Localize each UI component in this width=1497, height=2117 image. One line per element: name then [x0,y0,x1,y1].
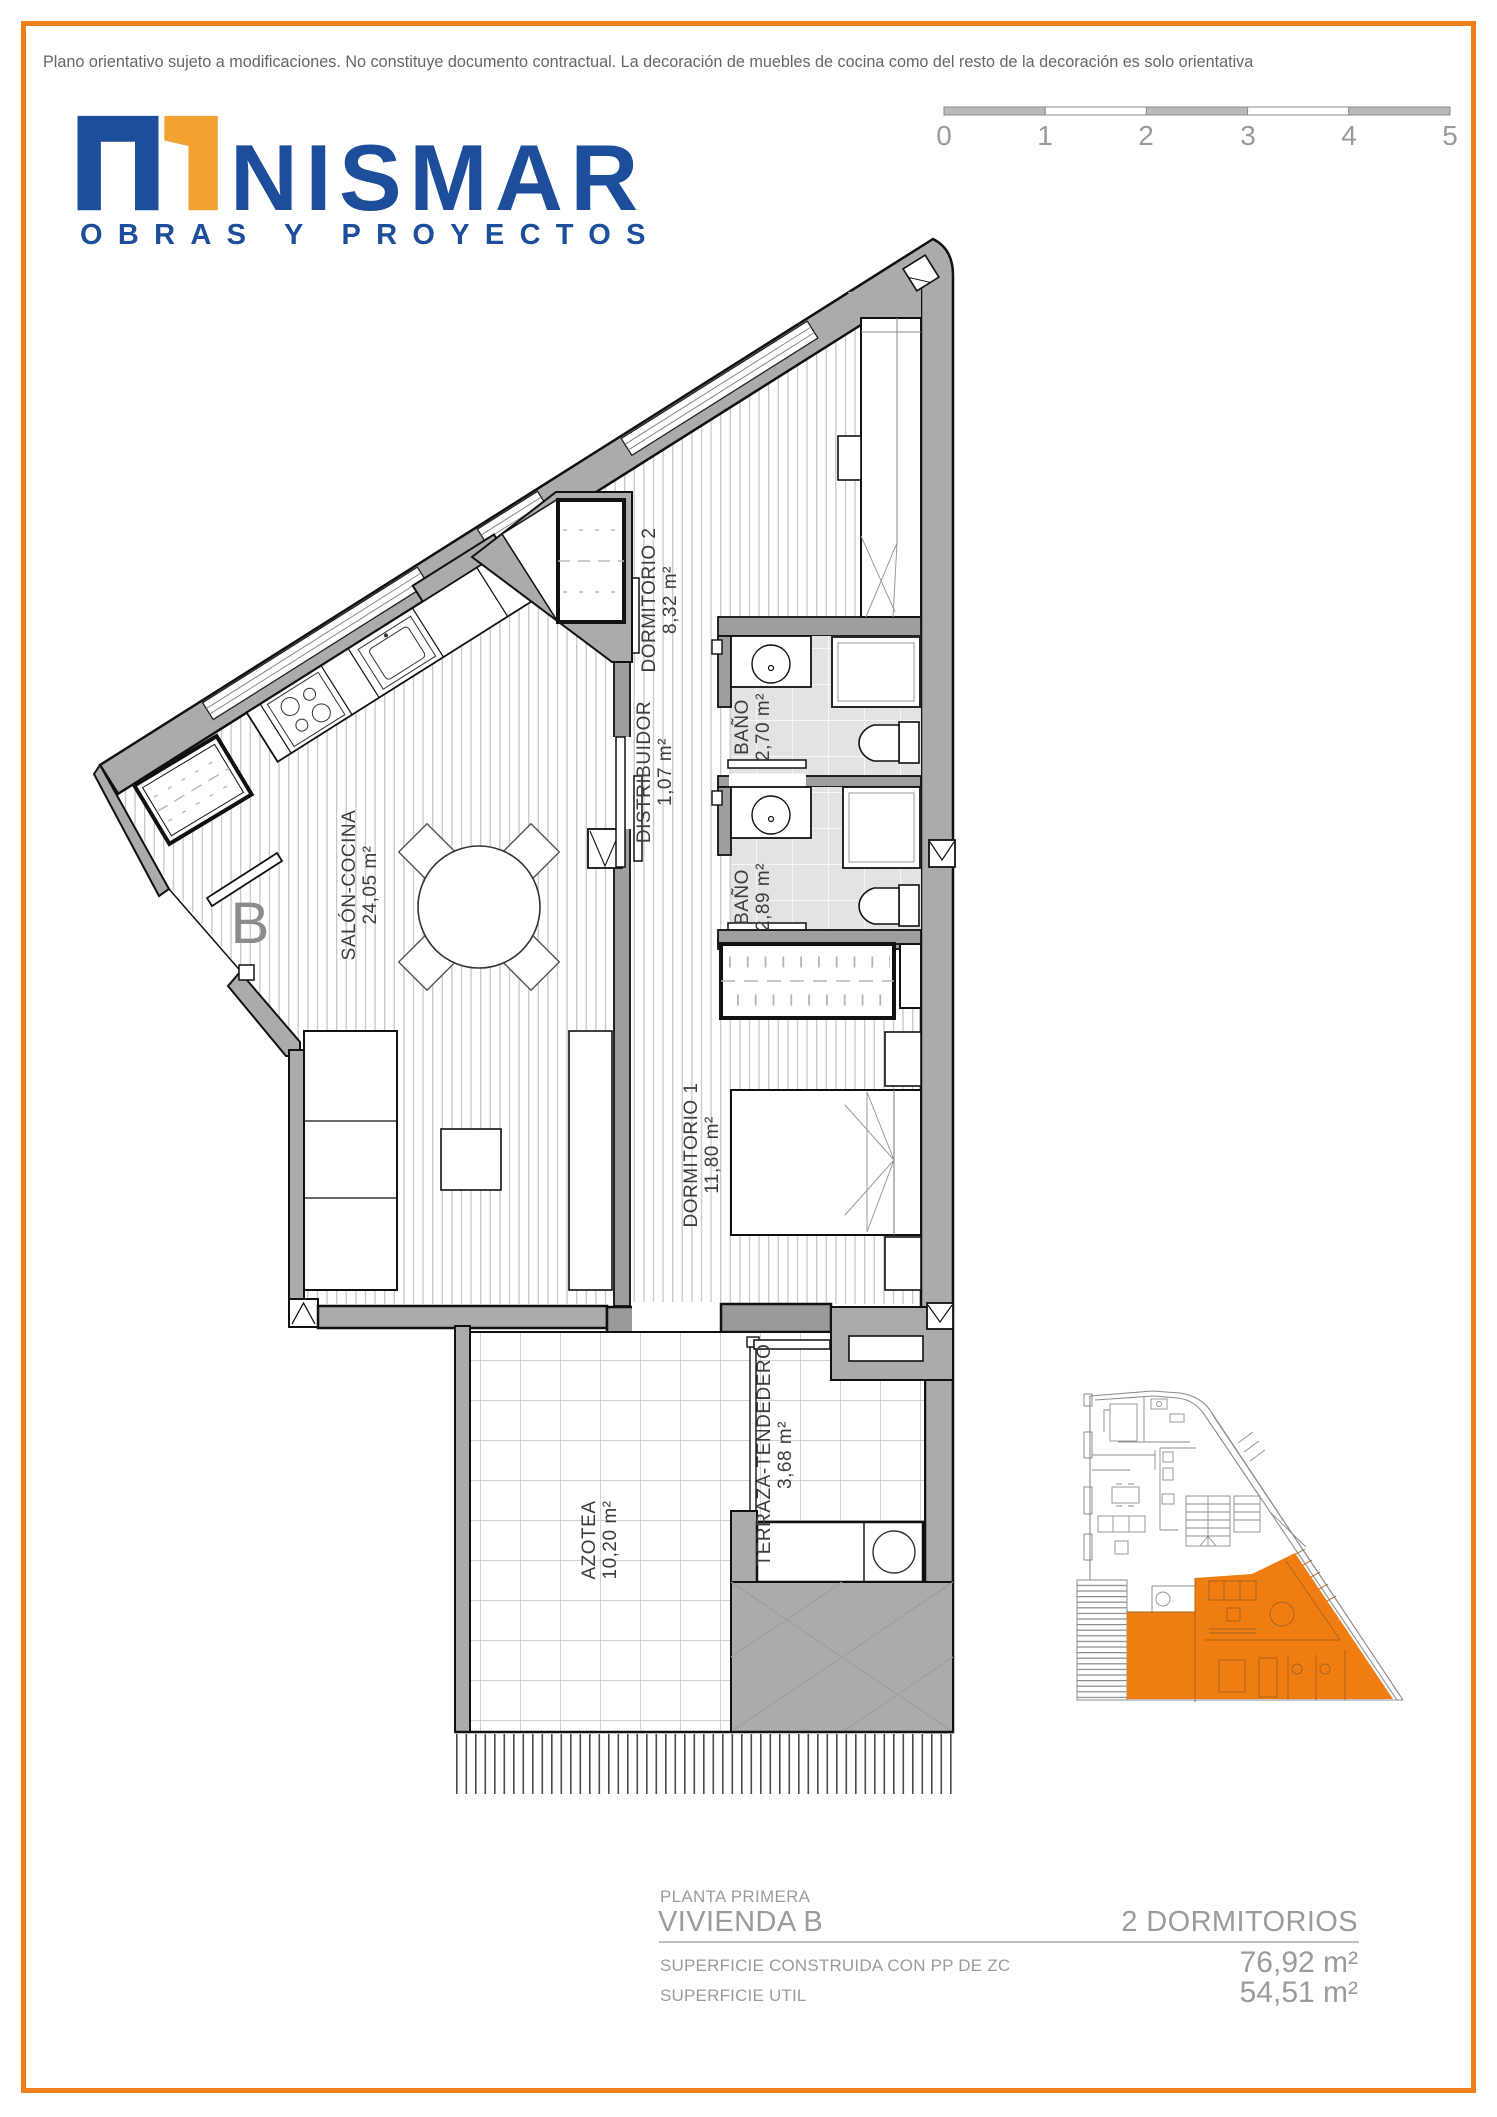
svg-text:BAÑO2,89 m²: BAÑO2,89 m² [731,863,774,931]
svg-text:B: B [231,891,270,956]
svg-text:2: 2 [1138,120,1154,151]
svg-text:NISMAR: NISMAR [230,125,646,230]
svg-text:SUPERFICIE UTIL: SUPERFICIE UTIL [660,1986,807,2005]
svg-text:1: 1 [1037,120,1053,151]
svg-text:Plano orientativo sujeto a mod: Plano orientativo sujeto a modificacione… [43,53,1253,71]
svg-text:4: 4 [1341,120,1357,151]
svg-text:5: 5 [1442,120,1458,151]
svg-text:AZOTEA10,20 m²: AZOTEA10,20 m² [579,1500,621,1579]
svg-text:0: 0 [936,120,952,151]
svg-text:76,92 m²: 76,92 m² [1240,1946,1358,1979]
svg-text:VIVIENDA B: VIVIENDA B [658,1906,823,1938]
svg-text:BAÑO2,70 m²: BAÑO2,70 m² [731,693,774,761]
svg-text:SUPERFICIE CONSTRUIDA CON PP D: SUPERFICIE CONSTRUIDA CON PP DE ZC [660,1956,1010,1975]
svg-text:3: 3 [1240,120,1256,151]
svg-text:54,51 m²: 54,51 m² [1240,1976,1358,2009]
svg-text:OBRAS Y PROYECTOS: OBRAS Y PROYECTOS [80,219,661,251]
svg-text:PLANTA PRIMERA: PLANTA PRIMERA [660,1887,811,1906]
svg-text:2 DORMITORIOS: 2 DORMITORIOS [1121,1906,1358,1938]
